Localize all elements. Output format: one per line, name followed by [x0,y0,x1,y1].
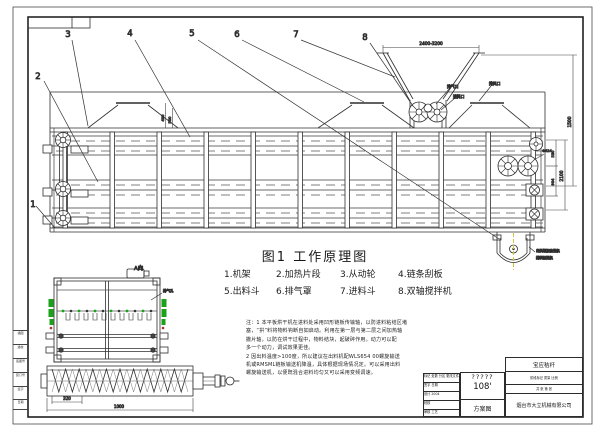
notes-block: 注：1 本平板烘干机在进料处采用凹形链板传输轴，以防进料粘结区堵 塞，“拱”料将… [246,319,434,378]
figure-legend: 1.机架 2.加热片段 3.从动轮 4.链条刮板 5.出料斗 6.排气罩 7.进… [224,267,468,297]
revision-row: 校核 [424,401,459,410]
green-accents [49,299,167,325]
conveyor-levels [52,136,543,227]
callout-6: 6 [234,30,239,40]
strip-row: 签字 [13,387,28,400]
legend-item: 2.加热片段 [276,267,340,280]
note-line: 撒片轴，以防在烘干过程中，物料结块，起破碎作用。动力可以配 [246,336,434,344]
company-name: 烟台市大立机械有限公司 [506,394,582,417]
label-exhaust-port: 排气口 [447,84,459,89]
dim-right-outer: 1500 [567,116,573,127]
strip-row: 装订号 [13,373,28,387]
label-vent-port: 排风口 [489,81,501,86]
dim-auger-len: 1000 [114,404,125,409]
label-feed-port: 进料口 [453,94,465,99]
note-line: 多一个动力，调试效果更佳。 [246,344,434,352]
legend-item: 4.链条刮板 [398,267,468,280]
label-discharge-1: 出料螺旋输送机 [536,248,560,253]
dim-hood-a: 400 [161,114,165,122]
callout-7: 7 [293,30,298,40]
legend-item: 5.出料斗 [224,284,276,297]
callout-numbers: 1 2 3 4 5 6 7 8 [30,29,367,210]
dim-hopper-span: 2400-3200 [419,41,443,47]
drawing-number-cell: ????? 108' 方案图 [460,372,505,417]
sheet-cells: 共 张 第 张 [506,385,582,394]
revision-row: 标记 处数 分区 更改文件号 [424,374,459,383]
revision-row: 签字 日期 [424,383,459,392]
dim-right-mid: 2100 [559,170,565,181]
figure-title: 图1 工作原理图 [220,246,410,265]
callout-1: 1 [30,200,35,210]
right-end-assembly [498,138,543,221]
note-line: 机或RMSML链板输送机降温，具体根据现场情况定。可以采用出料 [246,361,434,369]
dim-right-inner-bot: 904 [551,178,555,186]
note-line: 塞，“拱”料将物料钩断自如启动。利用在第一层与第二层之间加热轴 [246,327,434,335]
strip-row: 底图号 [13,359,28,373]
dim-hood-b: 500 [168,116,172,124]
callout-8: 8 [362,33,367,43]
dim-auger-pitch: 320 [63,396,71,401]
callout-3: 3 [65,30,70,40]
callout-5: 5 [189,29,194,39]
project-name: 宝应秸秆 [506,358,582,372]
note-line: 螺旋输送机，以便既混合进料均匀又可以采用变频调速。 [246,369,434,377]
label-vent-hole: 排气孔 [163,288,174,293]
legend-item: 6.排气罩 [276,284,340,297]
note-line: 注：1 本平板烘干机在进料处采用凹形链板传输轴，以防进料粘结区堵 [246,319,434,327]
callout-2: 2 [35,72,40,82]
drawing-sheet: 1 2 3 4 5 6 7 8 2400-3200 1500 2100 530 … [0,0,600,432]
doc-type: 方案图 [461,400,504,417]
project-company-cell: 宝应秸秆 阶段标记 质量 比例 共 张 第 张 烟台市大立机械有限公司 [505,357,583,417]
note-line: 2 因出料温度>100度，所以建议在出料机配WLS654 00螺旋输送 [246,353,434,361]
legend-item: 8.双轴搅拌机 [398,284,468,297]
dim-wheel-dia: Φ624 [542,149,552,153]
strip-row: 描校 [13,345,28,359]
title-block: 标记 处数 分区 更改文件号 签字 日期 设计 2004 校核 审核 工艺 ??… [423,357,583,417]
revision-row: 审核 工艺 [424,410,459,418]
revision-table: 标记 处数 分区 更改文件号 签字 日期 设计 2004 校核 审核 工艺 [423,373,460,417]
legend-item: 7.进料斗 [340,284,398,297]
screw-conveyor [41,366,240,396]
discharge-detail [493,232,535,270]
callout-4: 4 [127,29,132,39]
strip-row: 描图 [13,331,28,345]
scale-cells: 阶段标记 质量 比例 [506,372,582,385]
label-view-a: A向 [134,264,143,272]
label-discharge-2: 排料输送机 [536,255,554,260]
legend-item: 1.机架 [224,267,276,280]
legend-item: 3.从动轮 [340,267,398,280]
strip-row: 日期 [13,400,28,410]
exhaust-hoods [88,103,530,128]
drawing-no: 108' [461,382,504,392]
twin-shaft-mixer [409,102,447,122]
view-a-section [46,269,168,362]
machine-body [50,92,545,232]
revision-row: 设计 2004 [424,392,459,401]
border-strip: 描图 描校 底图号 装订号 签字 日期 [13,330,28,424]
drawing-no-masked: ????? [461,373,504,382]
